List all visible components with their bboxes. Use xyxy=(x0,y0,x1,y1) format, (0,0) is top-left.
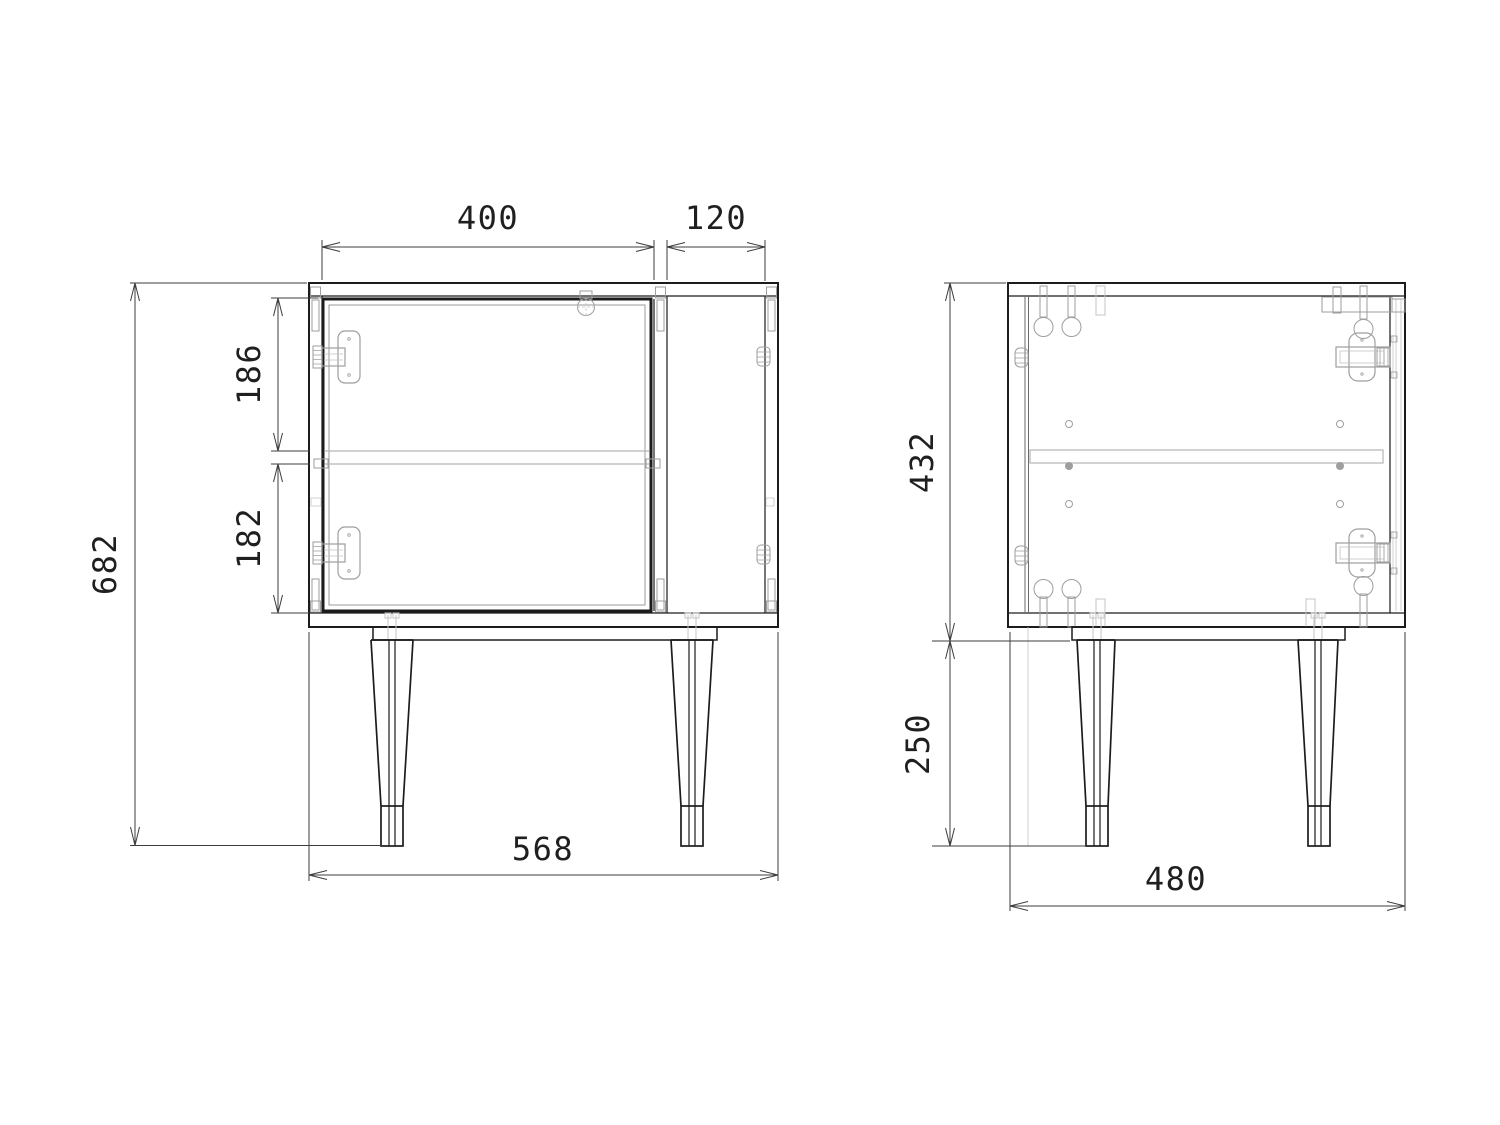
carcass-outline-side xyxy=(1008,283,1405,627)
pin-hole xyxy=(1337,501,1344,508)
hinge-teeth-lines xyxy=(313,351,322,365)
leg-front-left xyxy=(371,640,413,846)
screw-head xyxy=(1062,580,1081,599)
dim-door-width: 400 xyxy=(322,199,654,280)
dim-leg-height: 250 xyxy=(899,641,1086,846)
cam-dowel xyxy=(312,300,319,331)
door-panel xyxy=(323,299,651,611)
cam-knob-top xyxy=(757,347,770,366)
dim-label-overall-width: 568 xyxy=(512,830,574,868)
cam-dowel xyxy=(768,579,775,610)
pin-hole xyxy=(1066,421,1073,428)
dim-label-overall-height: 682 xyxy=(86,533,124,595)
cam-dowel xyxy=(768,300,775,331)
dim-upper-opening: 186 xyxy=(230,298,318,451)
hinge-plate-body xyxy=(1336,543,1390,563)
hinge-screw-dot xyxy=(348,534,351,537)
hinge-screw-dot xyxy=(348,338,351,341)
screw-shaft xyxy=(1040,286,1047,317)
dowel-pin xyxy=(1096,286,1105,315)
hinge-screw-dot xyxy=(1361,373,1363,375)
dim-depth: 480 xyxy=(1010,632,1405,911)
shelf-side xyxy=(1030,450,1383,463)
leg-center-lines xyxy=(1094,640,1100,846)
shelf-pin xyxy=(1336,462,1344,470)
leg-center-lines xyxy=(689,640,695,846)
hinge-screw-dot xyxy=(348,374,351,377)
cam-knob-bottom xyxy=(757,545,770,564)
dim-label-depth: 480 xyxy=(1145,860,1207,898)
hinge-teeth-lines xyxy=(313,547,322,561)
carcass-panel-lines-side xyxy=(1008,296,1405,613)
hinge-mount-teeth xyxy=(313,542,322,564)
back-panel-line xyxy=(1025,296,1029,613)
dimensions: 400 120 186 182 682 xyxy=(86,199,1405,911)
hinge-plate-flange xyxy=(1349,333,1375,381)
door-edge-side xyxy=(1396,299,1401,611)
dim-lower-opening: 182 xyxy=(230,464,310,613)
assembly-hardware xyxy=(311,287,777,612)
cam-dowel xyxy=(657,579,664,610)
hinge-arm xyxy=(322,544,345,562)
dim-label-lower-opening: 182 xyxy=(230,507,268,569)
corner-block xyxy=(1392,299,1405,312)
hinge-screw-dot xyxy=(348,570,351,573)
extension-lines xyxy=(932,283,1070,641)
cam-lock-symbol xyxy=(577,291,595,316)
hinge-screw-dot xyxy=(1361,535,1363,537)
screw-shaft xyxy=(1360,594,1367,627)
shelf-pin-marks xyxy=(311,498,774,506)
cam-dowel xyxy=(657,300,664,331)
cam-knob-body xyxy=(757,347,770,366)
cam-dowel xyxy=(312,579,319,610)
side-view xyxy=(1008,283,1405,846)
dim-label-upper-opening: 186 xyxy=(230,343,268,405)
dim-label-leg-height: 250 xyxy=(899,713,937,775)
back-cam-knob-top xyxy=(1015,348,1028,367)
hinge-cup-plate xyxy=(338,527,360,579)
screw-head xyxy=(1354,320,1373,339)
back-cam-knob-bottom xyxy=(1015,546,1028,565)
dim-label-carcass-height: 432 xyxy=(903,431,941,493)
furniture-drawing-canvas: 400 120 186 182 682 xyxy=(0,0,1500,1125)
leg-side-left xyxy=(1077,640,1115,846)
hinge-screw-dot xyxy=(1361,569,1363,571)
cam-knob-body xyxy=(757,545,770,564)
cam-knob-body xyxy=(1015,546,1028,565)
dim-label-niche-width: 120 xyxy=(685,199,747,237)
screw-head xyxy=(1034,318,1053,337)
hinge-cup-plate xyxy=(338,331,360,383)
cam-knob-ridges xyxy=(757,550,770,560)
shelf-pin-holes xyxy=(1066,421,1344,508)
screw-head xyxy=(1034,580,1053,599)
leg-taper xyxy=(1298,640,1338,806)
hinge-plate-flange xyxy=(1349,529,1375,577)
hinge-bottom xyxy=(313,527,360,579)
cam-lock-circle xyxy=(578,299,595,316)
leg-foot xyxy=(1308,806,1330,846)
leg-center-lines xyxy=(389,640,395,846)
plinth-rail-side xyxy=(1072,627,1345,640)
leg-foot xyxy=(381,806,403,846)
dim-overall-width: 568 xyxy=(309,632,778,881)
plinth-rail xyxy=(373,627,717,640)
dowel-pin xyxy=(1333,287,1341,313)
front-view xyxy=(309,283,778,846)
drawing-page: 400 120 186 182 682 xyxy=(0,0,1500,1125)
dim-label-door-width: 400 xyxy=(457,199,519,237)
screw-shaft xyxy=(1360,286,1367,319)
hinge-plate-bottom xyxy=(1336,529,1397,577)
extension-lines xyxy=(322,240,654,280)
leg-foot xyxy=(1086,806,1108,846)
extension-lines xyxy=(271,464,310,613)
screw-head xyxy=(1062,318,1081,337)
leg-taper xyxy=(671,640,713,806)
hinge-mount-teeth xyxy=(313,346,322,368)
hinge-top xyxy=(313,331,360,383)
carcass-panel-lines xyxy=(309,296,778,613)
screw-head xyxy=(1354,577,1373,596)
shelf-pin xyxy=(1065,462,1073,470)
cam-knob-ridges xyxy=(757,352,770,362)
hinge-screw-dot xyxy=(1361,339,1363,341)
hinge-plate-body xyxy=(1336,347,1390,367)
cam-knob-ridges xyxy=(1015,353,1028,363)
top-fittings xyxy=(1034,286,1405,339)
extension-lines xyxy=(667,240,765,281)
leg-taper xyxy=(1077,640,1115,806)
leg-side-right xyxy=(1298,640,1338,846)
extension-lines xyxy=(1010,632,1405,911)
hinge-arm xyxy=(322,348,345,366)
screw-shaft xyxy=(1040,597,1047,627)
shelf-hidden-line xyxy=(325,451,649,464)
leg-foot xyxy=(681,806,703,846)
leg-center-lines xyxy=(1315,640,1321,846)
pin-hole xyxy=(1337,421,1344,428)
cam-knob-ridges xyxy=(1015,551,1028,561)
screw-shaft xyxy=(1068,597,1075,627)
door-inner-edge xyxy=(329,305,645,605)
dim-niche-width: 120 xyxy=(667,199,765,281)
hinge-arm-lines xyxy=(324,354,343,360)
carcass-outline xyxy=(309,283,778,627)
screw-shaft xyxy=(1068,286,1075,317)
pin-hole xyxy=(1066,501,1073,508)
leg-taper xyxy=(371,640,413,806)
cam-knob-body xyxy=(1015,348,1028,367)
leg-front-right xyxy=(671,640,713,846)
hinge-plate-top xyxy=(1336,333,1397,381)
hinge-arm-lines xyxy=(324,550,343,556)
